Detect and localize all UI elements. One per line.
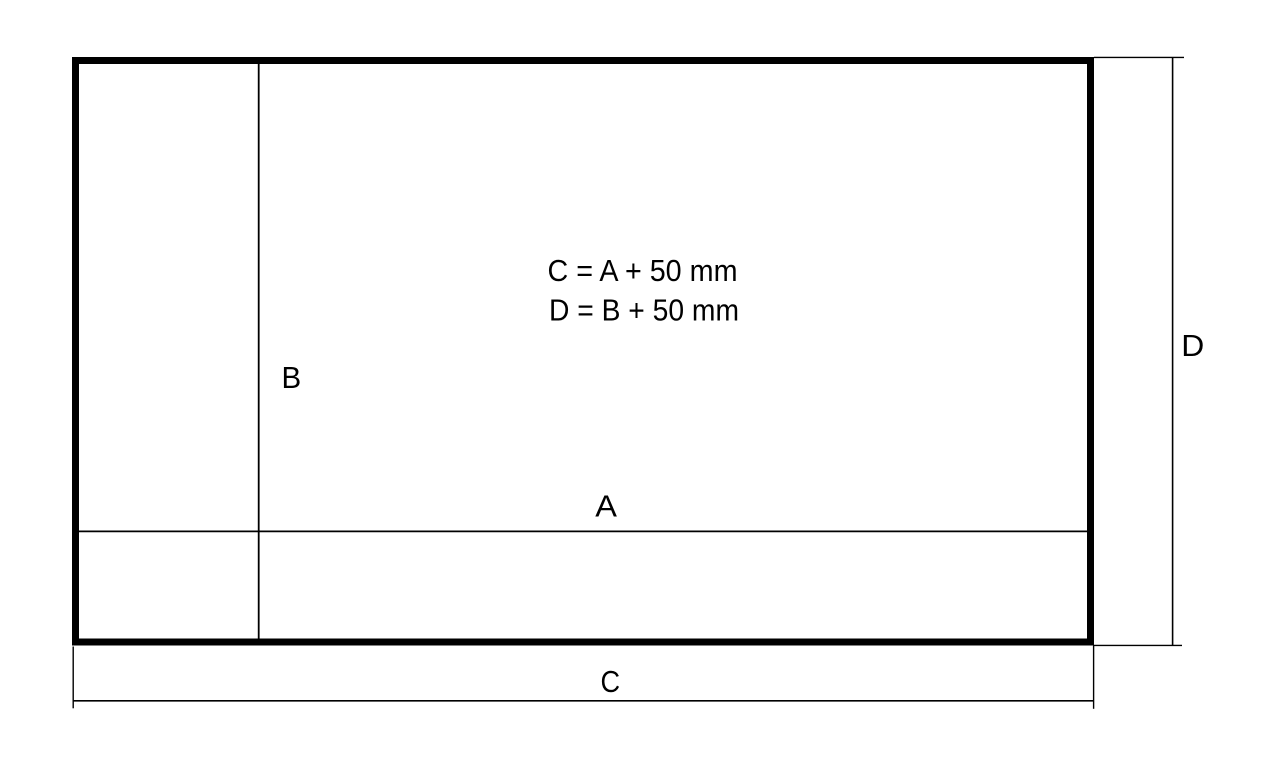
svg-text:C = A + 50 mm: C = A + 50 mm bbox=[548, 253, 738, 288]
svg-text:B: B bbox=[282, 360, 302, 395]
svg-text:D: D bbox=[1181, 328, 1204, 363]
svg-text:C: C bbox=[601, 664, 621, 699]
svg-text:A: A bbox=[595, 488, 617, 523]
svg-text:D = B + 50 mm: D = B + 50 mm bbox=[549, 292, 739, 327]
